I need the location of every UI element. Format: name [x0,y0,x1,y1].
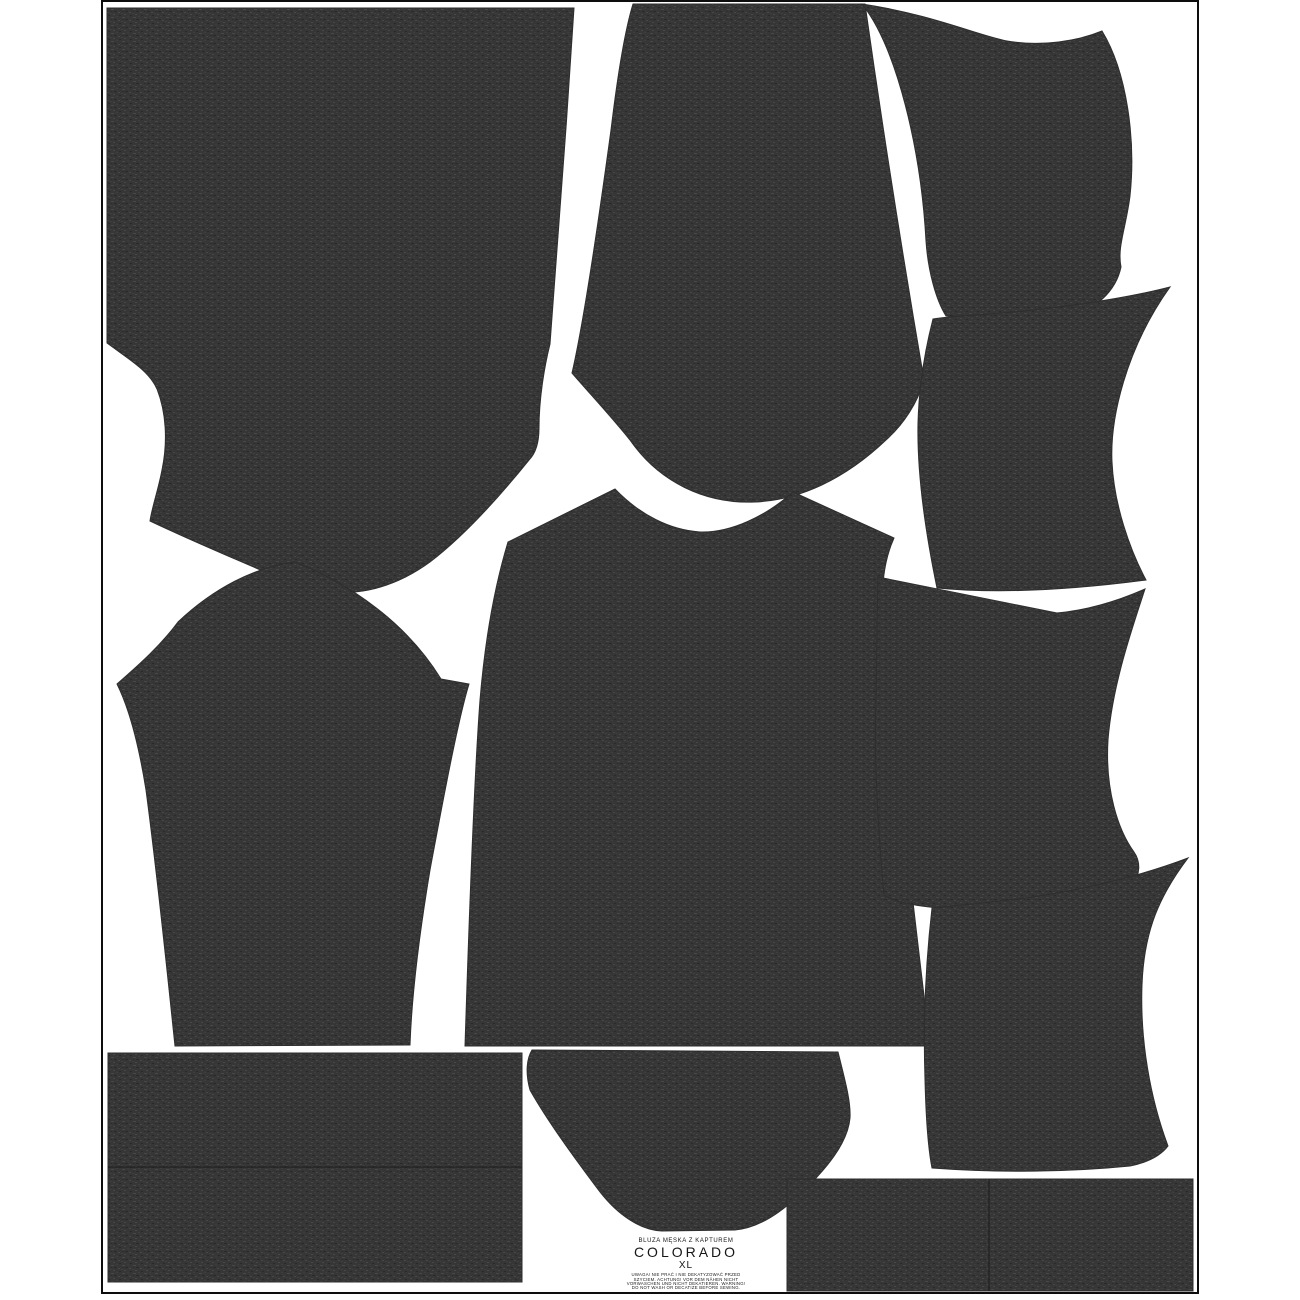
center-panel [465,489,930,1046]
front-panel [572,4,924,502]
panel-canvas [0,0,1300,1300]
sleeve [117,562,469,1046]
care-line: DO NOT WASH OR DECATIZE BEFORE SEWING. [511,1286,861,1290]
size-label: XL [511,1261,861,1272]
hood-piece-4 [924,858,1188,1171]
hood-piece-3 [875,577,1145,908]
back-panel [107,8,574,593]
panel-label-block: BLUZA MĘSKA Z KAPTUREM COLORADO XL UWAGA… [511,1238,861,1290]
pattern-name-label: COLORADO [511,1245,861,1260]
pattern-sheet: BLUZA MĘSKA Z KAPTUREM COLORADO XL UWAGA… [0,0,1300,1300]
pattern-pieces-layer [107,4,1193,1291]
hood-piece-2 [918,287,1170,591]
care-instructions: UWAGA! NIE PRAĆ I NIE DEKATYZOWAĆ PRZED … [511,1273,861,1289]
